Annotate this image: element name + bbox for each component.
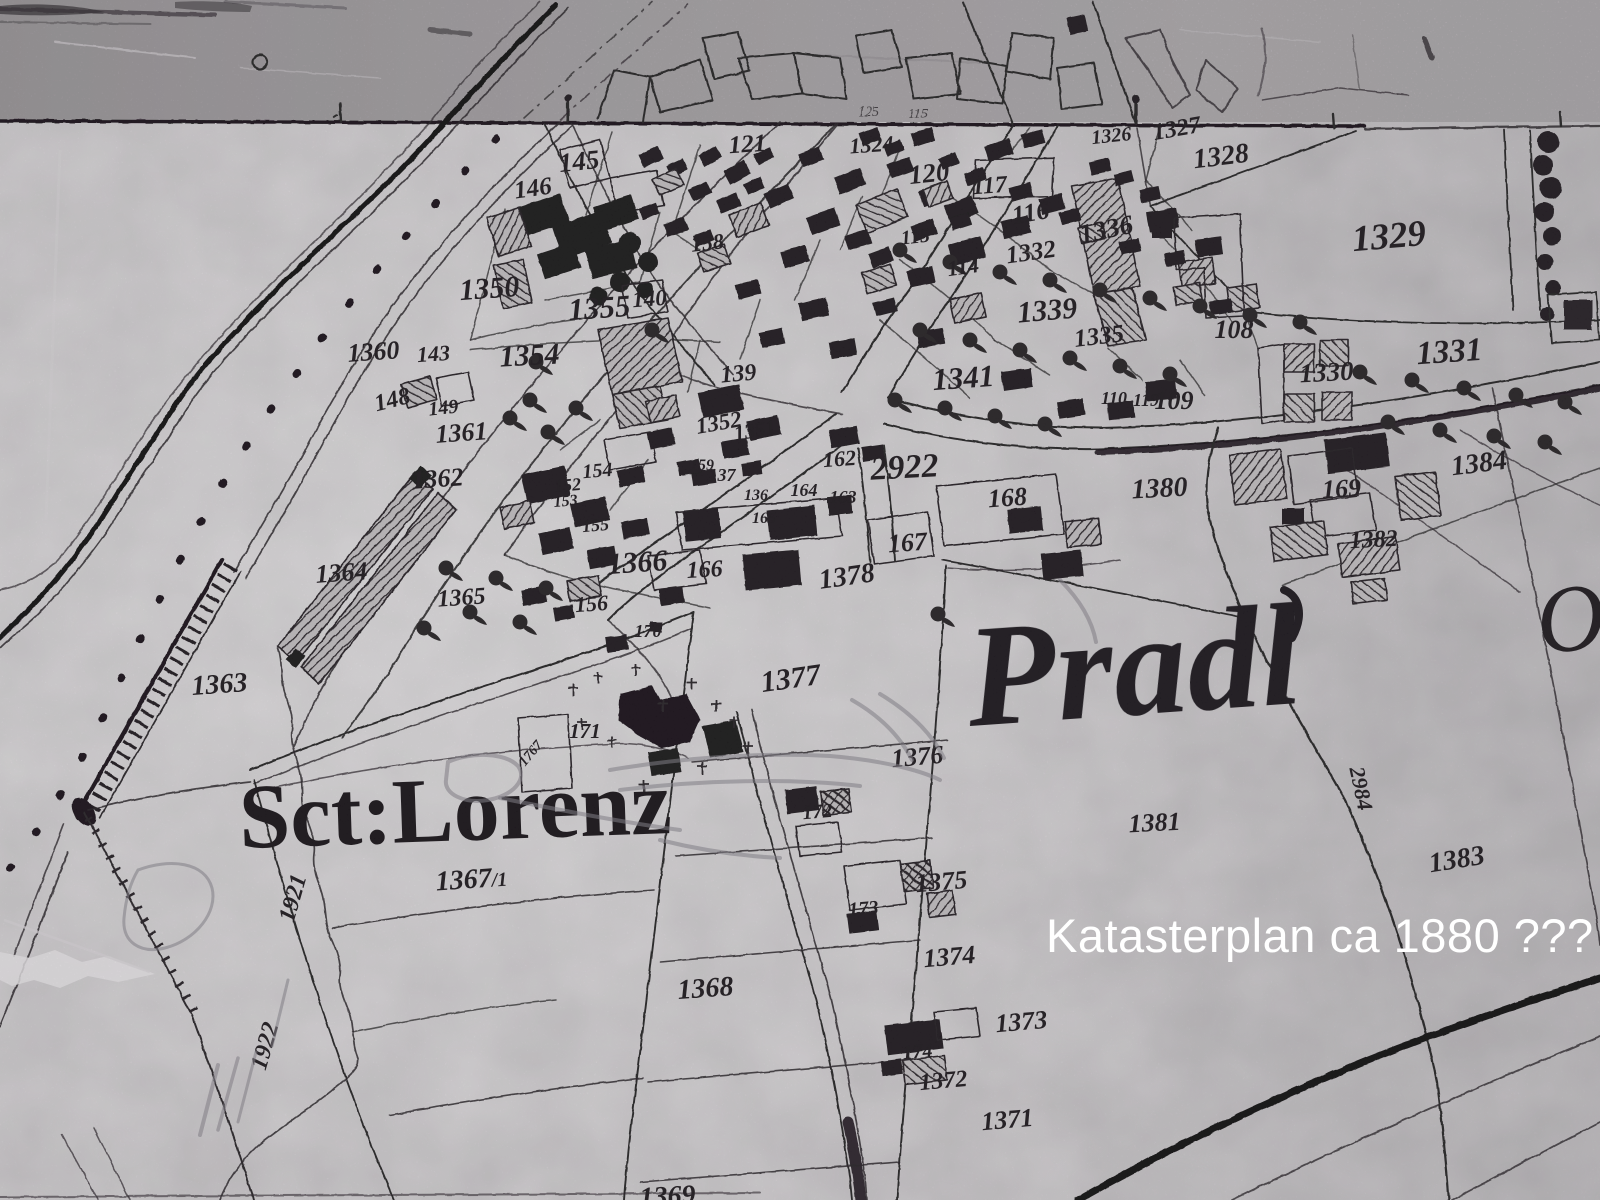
svg-text:Katasterplan ca 1880 ???: Katasterplan ca 1880 ???	[1046, 909, 1594, 962]
